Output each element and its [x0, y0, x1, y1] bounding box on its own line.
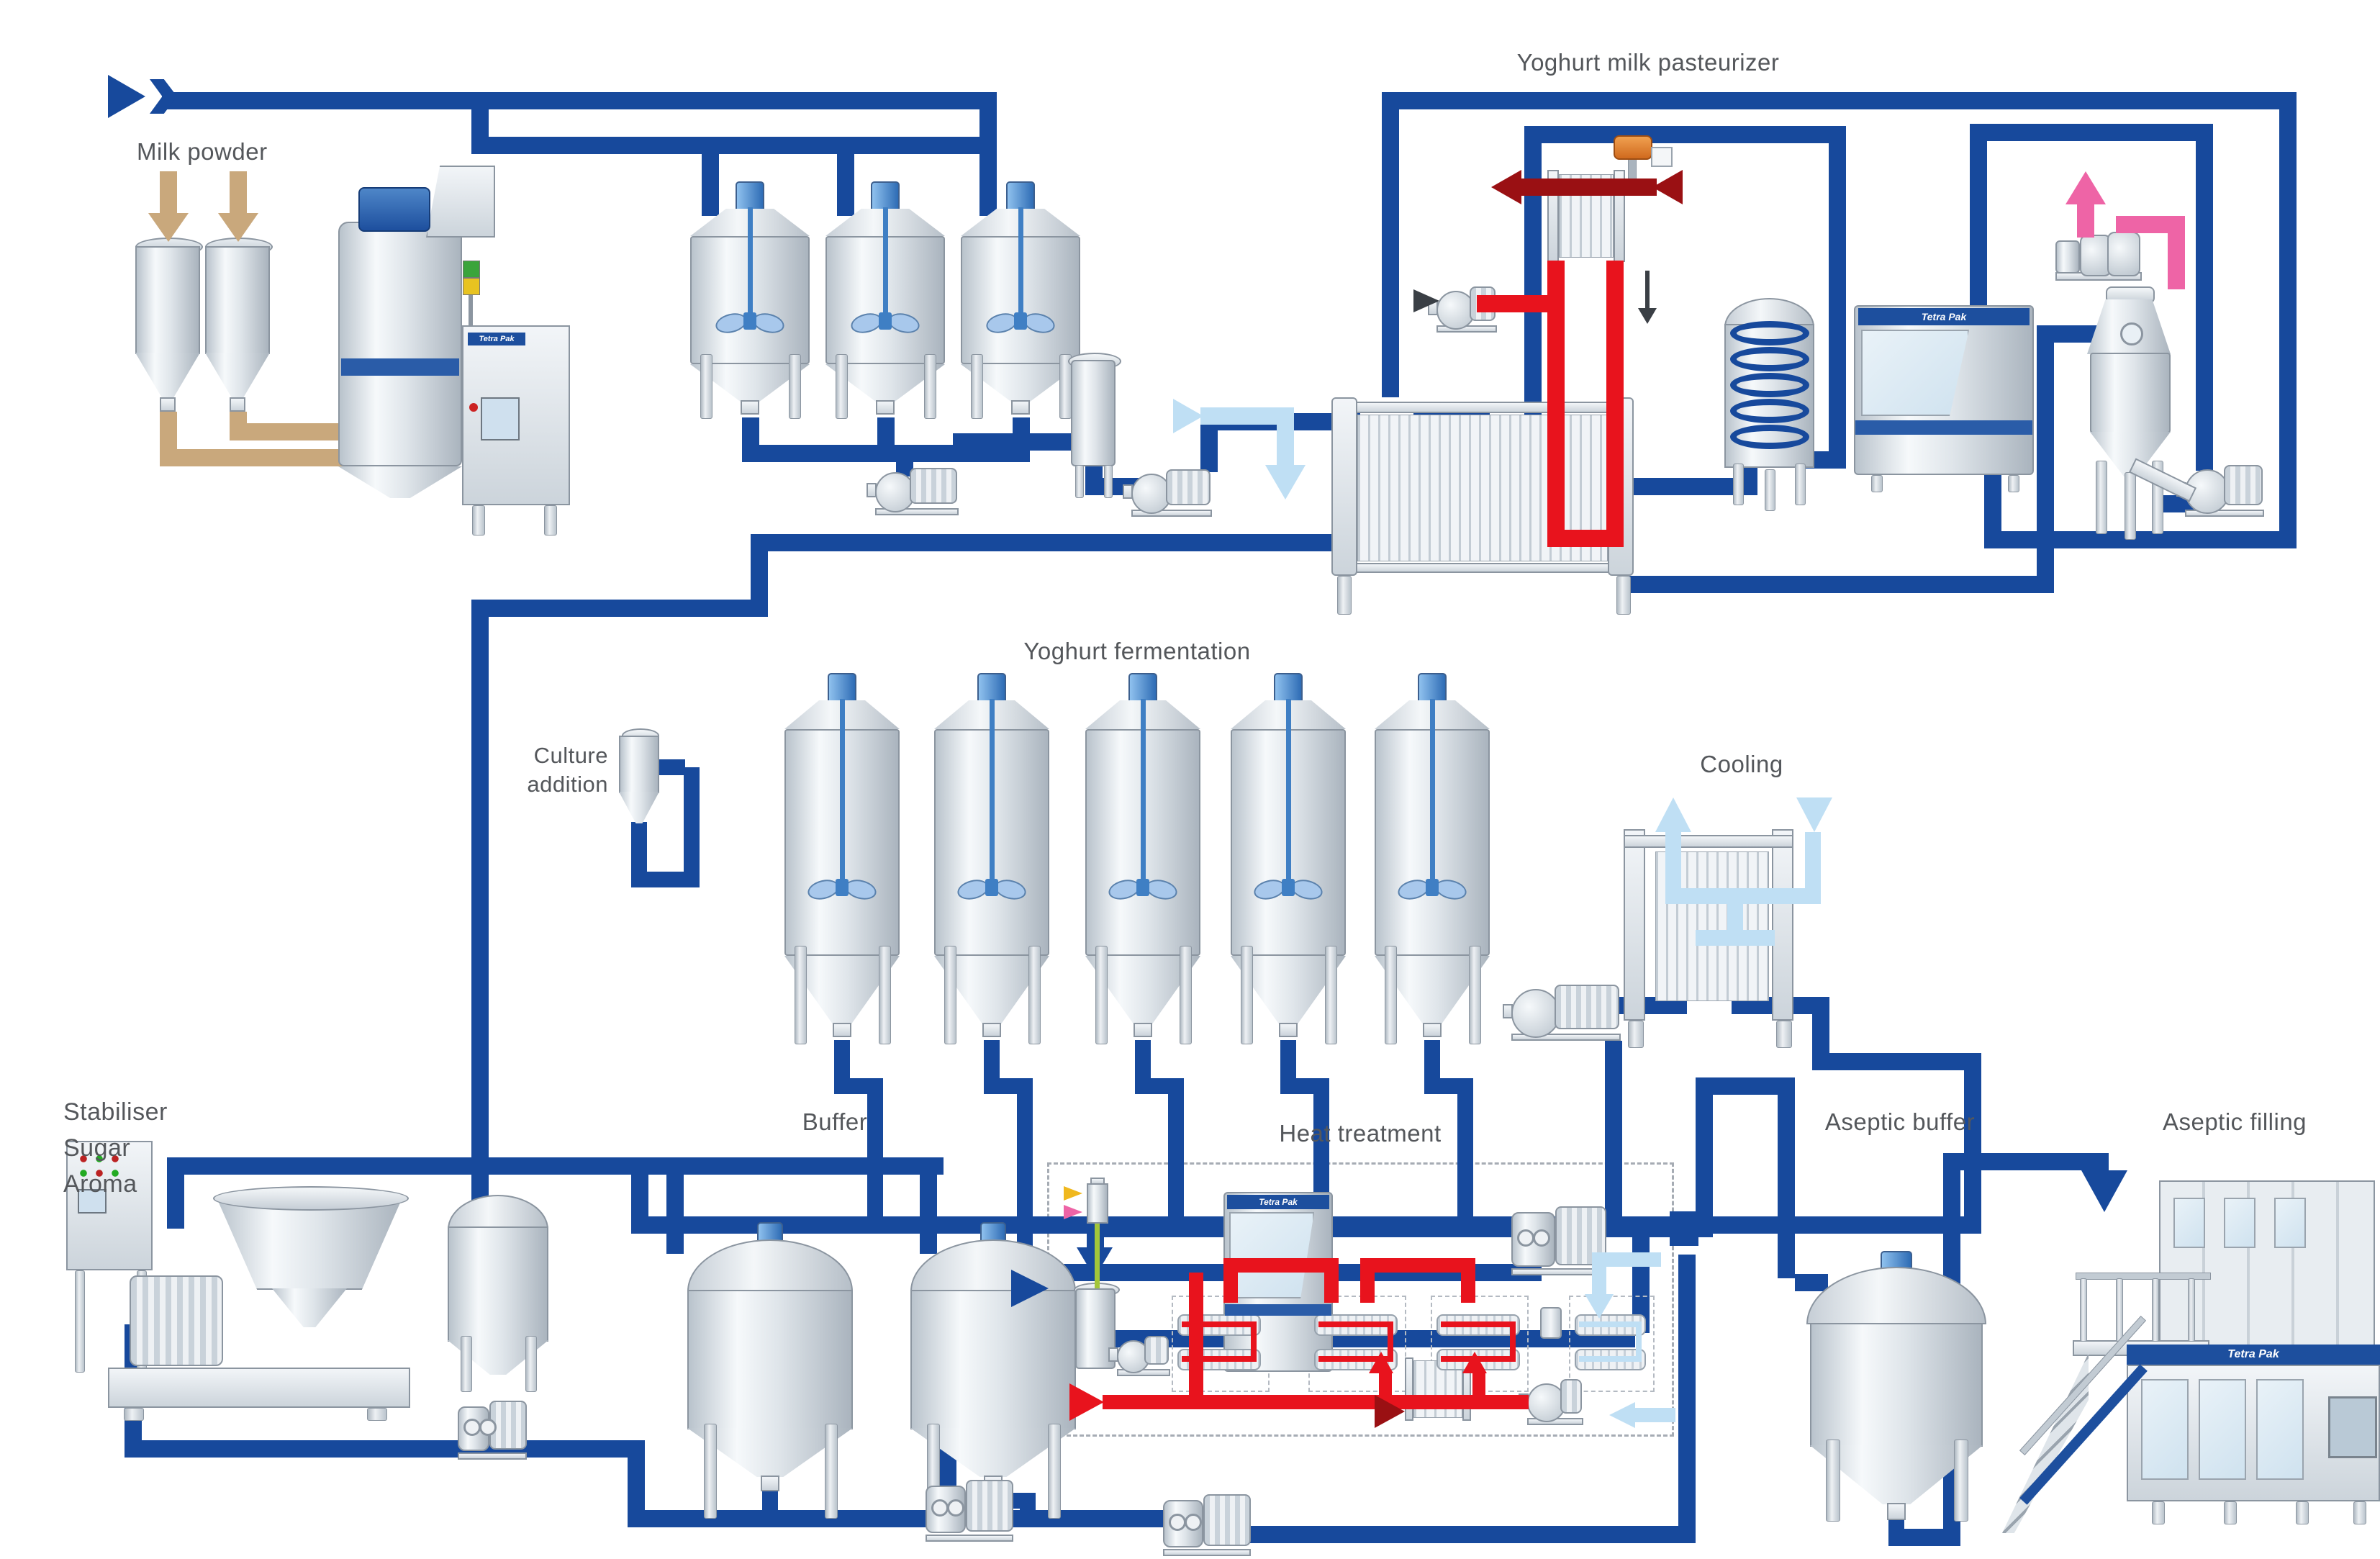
powder-hopper-outlet [160, 397, 176, 412]
holding-coil-ring [1730, 347, 1809, 371]
cooling-phe-post [1624, 829, 1645, 1021]
homogenizer-foot [2008, 475, 2019, 492]
culture-funnel-cone [619, 792, 659, 823]
storage-tank-leg [836, 354, 848, 419]
mixer-motor [358, 187, 430, 232]
fermentation-tank-leg [1385, 946, 1397, 1044]
filler-control-panel [2328, 1396, 2377, 1458]
fermentation-transfer-pump-lobe [1533, 1229, 1550, 1247]
ice-water-pipe [1200, 407, 1294, 425]
fermentation-tank-agitator-hub [985, 879, 998, 896]
bottom-transfer-pump-base [1163, 1549, 1251, 1556]
ice-water-in-arrow [1173, 399, 1203, 433]
fermentation-tank-leg [1469, 946, 1481, 1044]
aseptic-tank-leg [1826, 1440, 1840, 1522]
mixer-chute [426, 166, 495, 238]
mixer-cabinet-brand: Tetra Pak [468, 333, 525, 345]
fermentation-tank-leg [1325, 946, 1337, 1044]
stab-tank-body [448, 1226, 548, 1342]
flow-arrow-stem [1645, 271, 1650, 308]
fermentation-tank-cap [977, 673, 1006, 702]
filler-foot [2152, 1501, 2165, 1524]
ht-coil-line [1441, 1356, 1510, 1362]
ht-coil-line [1579, 1356, 1636, 1362]
stab-skid-foot [367, 1408, 387, 1421]
ht-coil-line [1636, 1321, 1642, 1362]
label-stabiliser-1: Stabiliser [63, 1098, 168, 1126]
vacuum-pipe [2077, 203, 2094, 238]
ht-hot-water-pipe [1472, 1372, 1485, 1396]
dosing-line [1095, 1224, 1100, 1288]
ht-tube-module [1569, 1296, 1655, 1392]
fermentation-tank-agitator-hub [836, 879, 849, 896]
label-culture-2: addition [461, 772, 608, 797]
ht-coil-line [1318, 1356, 1388, 1362]
feed-pump-inlet [867, 483, 877, 497]
storage-tank-outlet [876, 400, 895, 415]
ht-cabinet-stripe [1225, 1304, 1331, 1316]
balance-tank-leg [1075, 465, 1084, 498]
buffer-tank-body [910, 1290, 1076, 1429]
stabiliser-loop-pump-base [458, 1452, 527, 1460]
storage-tank-agitator-hub [1014, 312, 1027, 330]
pipe [1696, 1077, 1795, 1095]
deaerator-body [2090, 353, 2171, 433]
pipe [1457, 1094, 1473, 1216]
coolant-pipe [1696, 930, 1775, 946]
coolant-out-arrow [1655, 797, 1691, 832]
filler-foot [2353, 1501, 2366, 1524]
buffer-tank-dome [687, 1239, 853, 1291]
pipe [167, 1175, 184, 1229]
storage-tank-cap [871, 181, 900, 210]
ht-heater-endplate [1405, 1357, 1413, 1421]
stab-tank-leg [525, 1336, 537, 1392]
pipe [471, 600, 768, 617]
filler-door-window [2256, 1379, 2304, 1480]
ht-coil-line [1182, 1356, 1251, 1362]
deaerator-leg [2096, 461, 2107, 534]
pipe [979, 109, 997, 216]
ht-process-pump-inlet [1108, 1347, 1118, 1362]
label-buffer: Buffer [748, 1108, 921, 1136]
ht-dosing-unit [1087, 1183, 1108, 1224]
pipe [471, 137, 997, 154]
label-milk-powder: Milk powder [137, 138, 268, 166]
mixer-leg [472, 505, 485, 536]
pipe [2196, 141, 2213, 471]
pasteurizer-phe-topbar [1356, 402, 1609, 413]
holding-coil-ring [1730, 373, 1809, 397]
pipe [762, 1491, 778, 1527]
cooling-feed-pump-volute [1511, 989, 1560, 1038]
storage-tank-agitator-shaft [1018, 207, 1023, 321]
ht-coil-line [1318, 1321, 1388, 1327]
storage-tank-leg [971, 354, 983, 419]
pipe [1829, 143, 1846, 469]
ht-process-pump-motor [1144, 1336, 1169, 1365]
phe-leg [1616, 576, 1631, 615]
ht-coil-line [1510, 1321, 1516, 1362]
fermentation-tank-cap [828, 673, 856, 702]
culture-pipe [684, 767, 700, 887]
ht-hot-water-pipe [1223, 1273, 1238, 1303]
aseptic-tank-leg [1954, 1440, 1968, 1522]
cooling-phe-topbar [1624, 835, 1793, 848]
buffer-tank-leg [704, 1424, 717, 1519]
label-pasteurizer: Yoghurt milk pasteurizer [1475, 49, 1821, 76]
fermentation-tank-agitator-shaft [990, 699, 995, 887]
pipe [1812, 1053, 1981, 1070]
platform-rail-post [2080, 1278, 2087, 1342]
label-fermentation: Yoghurt fermentation [957, 638, 1317, 665]
holding-tank-leg [1733, 464, 1744, 505]
ht-coil-line [1579, 1321, 1636, 1327]
storage-tank-cap [1006, 181, 1035, 210]
pipe [1678, 1255, 1696, 1543]
stab-skid-foot [124, 1408, 144, 1421]
filler-upper-window [2274, 1198, 2306, 1248]
storage-tank-leg [924, 354, 936, 419]
holding-tank-leg [1765, 469, 1775, 511]
pipe [1168, 1094, 1184, 1216]
fermentation-tank-leg [1095, 946, 1108, 1044]
bottom-transfer-pump-lobe [1169, 1514, 1186, 1531]
pipe [1696, 1093, 1713, 1237]
pipe [1017, 1094, 1033, 1264]
fermentation-tank-agitator-hub [1136, 879, 1149, 896]
filler-door-window [2199, 1379, 2246, 1480]
stabiliser-loop-pump-lobe [479, 1419, 497, 1436]
buffer-tank-body [687, 1290, 853, 1429]
holding-coil-ring [1730, 399, 1809, 423]
pipe [1605, 1041, 1622, 1216]
ht-coolant-pipe [1632, 1408, 1675, 1422]
vacuum-pipe [2116, 216, 2185, 233]
pipe [1382, 92, 2297, 109]
ht-hot-water-pipe [1189, 1273, 1203, 1402]
ht-hot-water-pipe [1360, 1258, 1475, 1273]
label-aseptic-buffer: Aseptic buffer [1792, 1108, 2008, 1136]
steam-arrow [1491, 170, 1521, 204]
storage-tank-agitator-shaft [883, 207, 888, 321]
pipe [1670, 1211, 1698, 1246]
mixer-estop [469, 403, 478, 412]
pipe [125, 1440, 506, 1458]
storage-tank-outlet [1011, 400, 1030, 415]
fermentation-tank-agitator-hub [1426, 879, 1439, 896]
homogenizer-brand-band: Tetra Pak [1858, 308, 2030, 325]
powder-arrow-down [218, 213, 258, 242]
aseptic-tank-outlet [1887, 1503, 1906, 1520]
filling-inlet-arrow [2081, 1170, 2127, 1212]
bottom-transfer-pump-motor [1203, 1494, 1251, 1546]
feed-pump-motor [910, 468, 957, 504]
holding-coil-ring [1730, 321, 1809, 345]
bottom-transfer-pump-lobe [1185, 1514, 1202, 1531]
pasteurizer-phe-bottombar [1356, 563, 1609, 573]
pipe [1634, 478, 1742, 495]
brand-text: Tetra Pak [2227, 1348, 2279, 1361]
buffer-outlet-pump-base [926, 1535, 1013, 1542]
stab-panel-leg [75, 1270, 85, 1373]
pipe [2037, 343, 2054, 593]
aseptic-tank-body [1810, 1323, 1983, 1447]
stabiliser-loop-pump-lobe [463, 1419, 481, 1436]
powder-hopper-body [205, 246, 270, 354]
filler-door-window [2141, 1379, 2189, 1480]
stab-mixer-motor [130, 1275, 223, 1366]
ht-coil-line [1388, 1321, 1393, 1362]
fermentation-tank-leg [1241, 946, 1253, 1044]
pipe [1382, 109, 1399, 397]
vacuum-pipe [2168, 233, 2185, 289]
ht-cabinet-brand-band: Tetra Pak [1227, 1195, 1329, 1209]
vacuum-pump-motor [2055, 240, 2080, 274]
storage-tank-leg [700, 354, 712, 419]
holding-coil-ring [1730, 425, 1809, 449]
fermentation-tank-outlet [1423, 1023, 1442, 1037]
filler-foot [2296, 1501, 2309, 1524]
hot-water-pipe [1547, 530, 1624, 547]
cooling-feed-pump-inlet [1503, 1004, 1513, 1018]
label-cooling: Cooling [1655, 751, 1828, 778]
fermentation-tank-agitator-shaft [840, 699, 845, 887]
ht-inline-valve [1540, 1307, 1562, 1339]
mixer-hmi-screen [481, 397, 520, 440]
homogenizer-stripe [1855, 420, 2032, 435]
fermentation-tank-cap [1128, 673, 1157, 702]
ht-hot-water-pump-motor [1560, 1379, 1582, 1414]
fermentation-tank-leg [1180, 946, 1192, 1044]
filler-brand-band: Tetra Pak [2127, 1345, 2380, 1365]
balance-tank-body [1071, 360, 1116, 466]
fermentation-tank-cap [1274, 673, 1303, 702]
platform-rail-post [2116, 1278, 2123, 1342]
mixer-leg [544, 505, 557, 536]
status-lamp-yellow [463, 278, 480, 295]
pipe [1795, 1274, 1828, 1291]
fermentation-tank-leg [879, 946, 891, 1044]
storage-tank-agitator-shaft [748, 207, 753, 321]
ht-coolant-pipe [1592, 1267, 1606, 1294]
stab-tank-dome [448, 1195, 548, 1229]
powder-arrow-down [148, 213, 189, 242]
buffer-outlet-pump-lobe [947, 1499, 964, 1517]
buffer-outlet-pump-lobe [931, 1499, 949, 1517]
ht-hot-water-pipe [1223, 1258, 1339, 1273]
pipe [751, 534, 1337, 551]
buffer-tank-leg [1048, 1424, 1061, 1519]
buffer-outlet-pump-motor [966, 1480, 1013, 1532]
brand-text: Tetra Pak [479, 335, 514, 343]
fermentation-tank-cap [1418, 673, 1447, 702]
milk-inlet-arrow [108, 75, 145, 118]
hot-water-pipe [1477, 295, 1547, 312]
holding-tank-leg [1795, 464, 1806, 505]
steam-valve-actuator [1614, 135, 1652, 160]
homogenizer-foot [1871, 475, 1883, 492]
ht-dosing-cap [1090, 1178, 1105, 1185]
steam-pipe [1520, 179, 1657, 196]
brand-text: Tetra Pak [1259, 1197, 1298, 1207]
powder-arrow-stem [160, 171, 177, 214]
pipe [1280, 1078, 1329, 1094]
phe-leg [1337, 576, 1352, 615]
ht-coil-line [1441, 1321, 1510, 1327]
fermentation-tank-outlet [982, 1023, 1001, 1037]
ht-hot-water-pipe [1461, 1273, 1475, 1303]
label-aseptic-filling: Aseptic filling [2130, 1108, 2339, 1136]
pasteurizer-phe-endplate [1331, 397, 1357, 576]
culture-pipe [631, 822, 647, 875]
powder-hopper-cone [135, 353, 200, 399]
platform-rail-post [2188, 1278, 2195, 1342]
ht-cabinet-window [1229, 1212, 1314, 1298]
ice-water-out-arrow [1265, 465, 1306, 500]
label-heat-treatment: Heat treatment [1216, 1120, 1504, 1147]
ht-coolant-pipe [1592, 1252, 1661, 1267]
pipe [628, 1510, 943, 1527]
pipe [837, 154, 854, 216]
pipe [1135, 1078, 1184, 1094]
pipe [2037, 325, 2100, 343]
pipe [742, 417, 759, 445]
fermentation-tank-agitator-hub [1282, 879, 1295, 896]
pipe [666, 1175, 684, 1254]
pipe [471, 109, 489, 137]
fermentation-tank-agitator-shaft [1430, 699, 1435, 887]
pipe [1524, 126, 1846, 143]
buffer-tank-outlet [761, 1476, 779, 1491]
ht-coil-line [1182, 1321, 1251, 1327]
deaerator-leg [2125, 472, 2136, 540]
pipe [631, 1175, 648, 1234]
cooling-phe-leg [1776, 1021, 1792, 1048]
pipe [162, 92, 997, 109]
balance-tank-leg [1104, 465, 1113, 498]
pipe [1943, 1153, 2109, 1170]
deaerator-pump-motor [2224, 465, 2263, 505]
brand-text: Tetra Pak [1922, 311, 1967, 322]
powder-hopper-body [135, 246, 200, 354]
storage-tank-outlet [741, 400, 759, 415]
balance-outlet-pump-inlet [1123, 484, 1133, 499]
storage-tank-agitator-hub [743, 312, 756, 330]
storage-tank-cap [736, 181, 764, 210]
powder-arrow-stem [230, 171, 247, 214]
filler-upper-window [2173, 1198, 2205, 1248]
vacuum-exhaust-arrow [2065, 171, 2106, 204]
fermentation-tank-leg [944, 946, 956, 1044]
balance-outlet-pump-motor [1166, 469, 1211, 505]
pipe [877, 417, 895, 445]
label-stabiliser-3: Aroma [63, 1170, 137, 1198]
cooling-phe-leg [1628, 1021, 1644, 1048]
pipe [1200, 430, 1218, 472]
steam-arrow [1652, 170, 1683, 204]
ht-hot-water-pipe [1103, 1395, 1529, 1409]
platform-rail-post [2152, 1278, 2159, 1342]
stab-hopper-cone [272, 1288, 347, 1327]
fermentation-tank-agitator-shaft [1141, 699, 1146, 887]
mixer-cone [338, 466, 462, 498]
pipe [953, 433, 1071, 451]
pipe [920, 1175, 937, 1254]
pipe [1970, 124, 2213, 141]
storage-tank-leg [789, 354, 801, 419]
pipe [702, 154, 719, 216]
coolant-in-arrow [1796, 797, 1832, 832]
pipe [1964, 1070, 1981, 1234]
pipe [1249, 1526, 1696, 1543]
label-culture-1: Culture [461, 743, 608, 769]
pipe [1619, 576, 2054, 593]
buffer-tank-leg [825, 1424, 838, 1519]
powder-hopper-cone [205, 353, 270, 399]
coolant-pipe [1665, 888, 1821, 904]
storage-tank-agitator-hub [879, 312, 892, 330]
fermentation-transfer-pump-lobe [1517, 1229, 1534, 1247]
yoghurt-process-diagram: Milk powder Yoghurt milk pasteurizer Yog… [0, 0, 2380, 1559]
filler-foot [2224, 1501, 2237, 1524]
hot-water-pipe [1606, 261, 1624, 547]
pipe [1012, 1510, 1163, 1527]
stab-tank-leg [461, 1336, 472, 1392]
steam-valve-tag [1651, 147, 1673, 167]
culture-funnel-body [619, 736, 659, 793]
ht-hot-water-pipe [1324, 1273, 1339, 1303]
pipe [1424, 1078, 1473, 1094]
pipe [984, 1078, 1033, 1094]
stab-hopper-rim [213, 1186, 409, 1211]
pipe [167, 1157, 944, 1175]
status-lamp-pole [469, 294, 473, 328]
powder-hopper-outlet [230, 397, 245, 412]
fermentation-tank-agitator-shaft [1286, 699, 1291, 887]
status-lamp-green [463, 261, 480, 278]
pipe [834, 1078, 883, 1094]
cooling-feed-pump-motor [1555, 985, 1619, 1029]
fermentation-tank-outlet [1279, 1023, 1298, 1037]
pipe [2279, 109, 2297, 548]
ht-hot-water-pipe [1379, 1372, 1392, 1396]
filler-upper-window [2224, 1198, 2255, 1248]
pipe [1984, 531, 2297, 548]
vacuum-pump-lobe [2107, 232, 2140, 276]
flow-arrow-down [1638, 308, 1657, 324]
powder-mixer-band [341, 358, 459, 376]
ht-hot-water-pipe [1360, 1273, 1375, 1303]
ht-coil-line [1251, 1321, 1257, 1362]
fermentation-tank-leg [795, 946, 807, 1044]
fermentation-tank-leg [1028, 946, 1041, 1044]
powder-mixer-tank [338, 222, 462, 466]
hot-water-pipe [1547, 261, 1565, 547]
fermentation-tank-outlet [1134, 1023, 1152, 1037]
ice-water-pipe [1277, 425, 1294, 466]
deaerator-sightglass [2120, 322, 2143, 345]
label-stabiliser-2: Sugar [63, 1134, 130, 1162]
fermentation-tank-outlet [833, 1023, 851, 1037]
cooling-phe-post [1772, 829, 1793, 1021]
stab-mixer-skid [108, 1368, 410, 1408]
pipe [628, 1458, 645, 1513]
pipe [471, 617, 489, 1155]
